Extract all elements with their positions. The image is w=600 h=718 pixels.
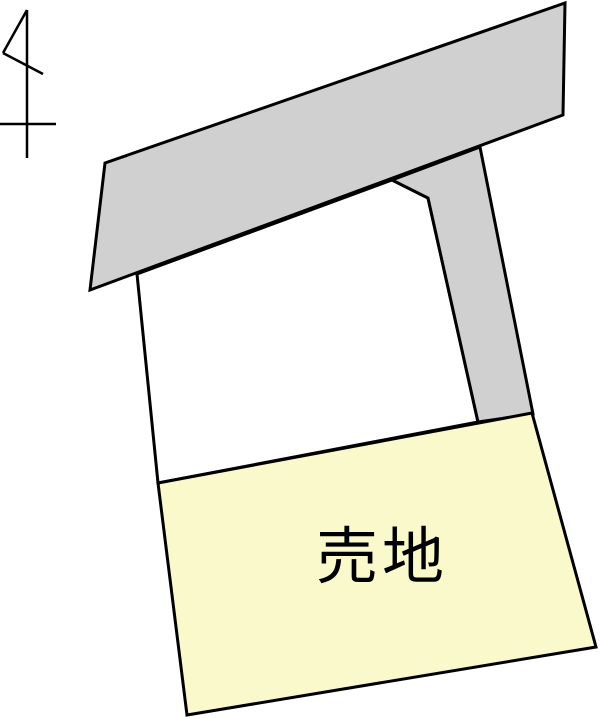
north-arrow-segment	[3, 53, 43, 74]
site-map-canvas: 売地	[0, 0, 600, 718]
north-arrow-segment	[3, 10, 27, 53]
shapes-layer	[90, 3, 596, 715]
sale-parcel-label: 売地	[316, 520, 448, 593]
plot-map: 売地	[0, 0, 600, 718]
north-arrow-icon	[0, 10, 56, 158]
